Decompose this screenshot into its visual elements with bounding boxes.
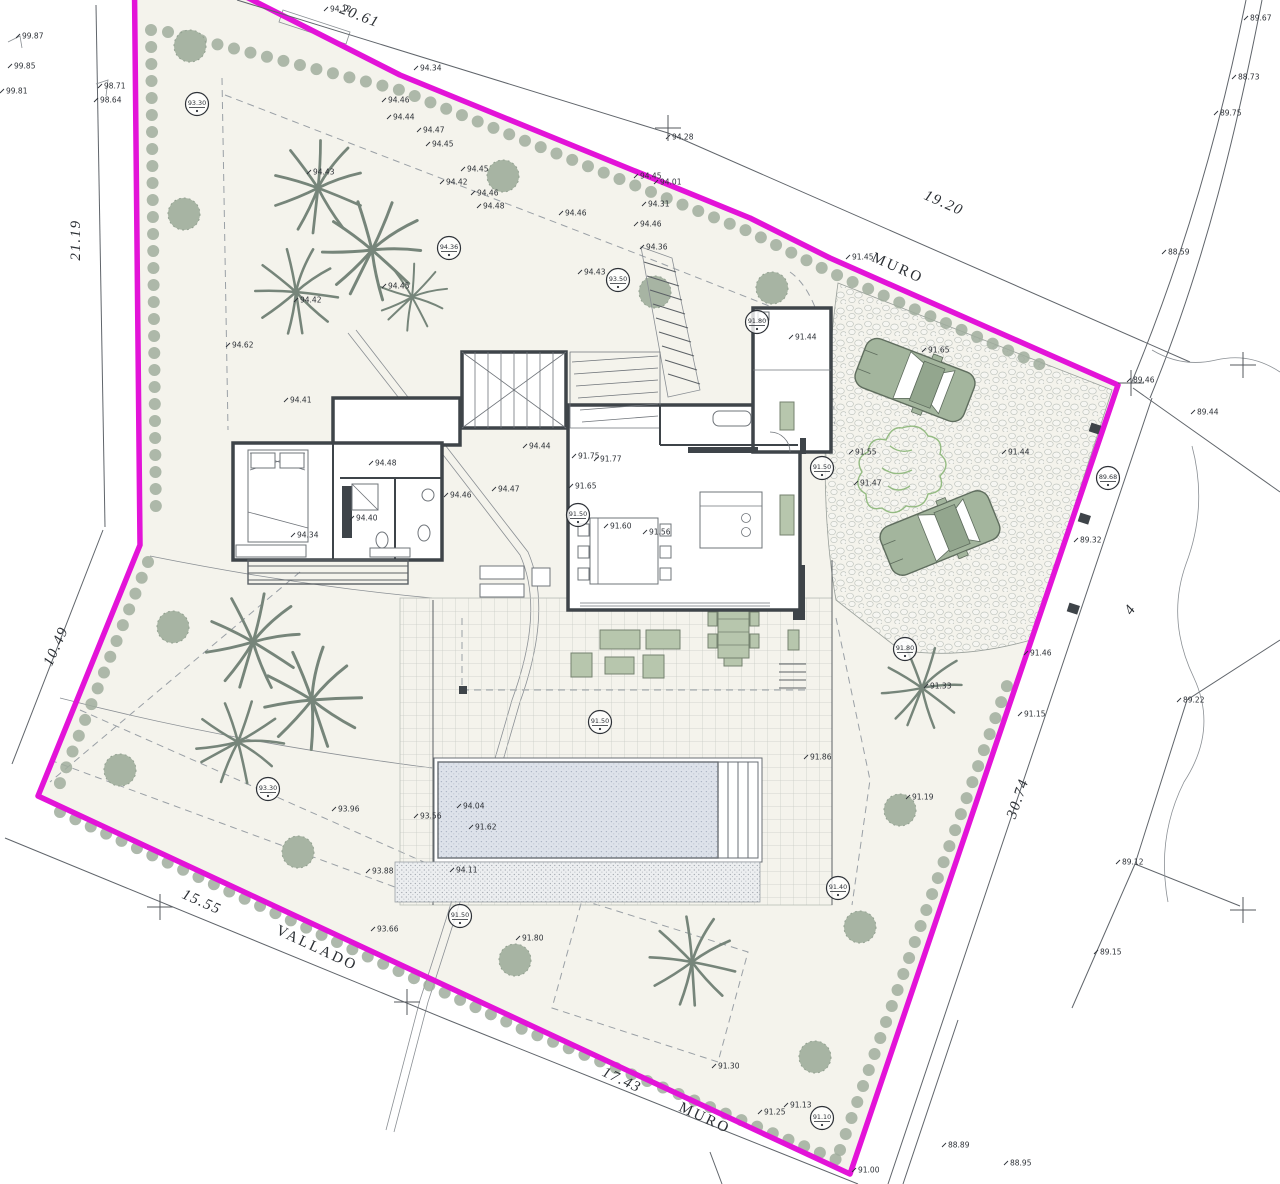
benchmark-value: 91.10 xyxy=(813,1113,831,1121)
spot-elevation-tick xyxy=(1004,1161,1008,1165)
spot-elevation: 88.59 xyxy=(1162,248,1190,257)
spot-elevation-value: 93.88 xyxy=(372,867,394,876)
spot-elevation: 98.71 xyxy=(98,82,126,91)
benchmark-value: 91.50 xyxy=(569,510,587,518)
benchmark-dot xyxy=(756,328,758,330)
survey-cross xyxy=(1230,897,1256,923)
spot-elevation-value: 94.40 xyxy=(356,514,378,523)
spot-elevation-value: 98.64 xyxy=(100,96,122,105)
spot-elevation-tick xyxy=(8,64,12,68)
spot-elevation-tick xyxy=(1127,378,1131,382)
benchmark-marker: 91.50 xyxy=(589,711,612,734)
spot-elevation-value: 94.45 xyxy=(388,282,410,291)
spot-elevation-value: 99.85 xyxy=(14,62,36,71)
spot-elevation-value: 94.47 xyxy=(498,485,520,494)
spot-elevation-value: 89.15 xyxy=(1100,948,1122,957)
benchmark-marker: 93.30 xyxy=(186,93,209,116)
benchmark-value: 93.50 xyxy=(609,275,627,283)
spot-elevation-value: 94.28 xyxy=(672,133,694,142)
spot-elevation-value: 91.44 xyxy=(795,333,817,342)
benchmark-marker: 91.50 xyxy=(811,457,834,480)
benchmark-marker: 91.10 xyxy=(811,1107,834,1130)
benchmark-dot xyxy=(837,894,839,896)
spot-elevation-value: 94.31 xyxy=(648,200,670,209)
benchmark-dot xyxy=(599,728,601,730)
spot-elevation-tick xyxy=(1162,250,1166,254)
spot-elevation-tick xyxy=(1177,698,1181,702)
benchmark-marker: 91.80 xyxy=(746,311,769,334)
spot-elevation-tick xyxy=(846,255,850,259)
spot-elevation-value: 91.00 xyxy=(858,1166,880,1175)
spot-elevation-tick xyxy=(1232,75,1236,79)
spot-elevation-value: 94.42 xyxy=(300,296,322,305)
spot-elevation-tick xyxy=(1116,860,1120,864)
spot-elevation-value: 94.44 xyxy=(529,442,551,451)
pool-deck xyxy=(395,862,760,902)
benchmark-value: 93.30 xyxy=(188,99,206,107)
spot-elevation-value: 91.47 xyxy=(860,479,882,488)
spot-elevation-value: 94.43 xyxy=(584,268,606,277)
spot-elevation-value: 91.25 xyxy=(764,1108,786,1117)
spot-elevation-tick xyxy=(98,84,102,88)
benchmark-marker: 94.36 xyxy=(438,237,461,260)
spot-elevation-value: 94.46 xyxy=(565,209,587,218)
benchmark-value: 91.80 xyxy=(896,644,914,652)
spot-elevation-tick xyxy=(942,1143,946,1147)
spot-elevation: 89.22 xyxy=(1177,696,1205,705)
spot-elevation-value: 91.60 xyxy=(610,522,632,531)
spot-elevation-value: 94.46 xyxy=(477,189,499,198)
benchmark-value: 91.80 xyxy=(748,317,766,325)
spot-elevation-value: 91.62 xyxy=(475,823,497,832)
spot-elevation-value: 88.95 xyxy=(1010,1159,1032,1168)
spot-elevation-value: 94.46 xyxy=(450,491,472,500)
benchmark-value: 91.50 xyxy=(451,911,469,919)
spot-elevation-value: 94.45 xyxy=(467,165,489,174)
benchmark-dot xyxy=(821,474,823,476)
benchmark-value: 91.50 xyxy=(591,717,609,725)
spot-elevation-value: 89.75 xyxy=(1220,109,1242,118)
benchmark-dot xyxy=(821,1124,823,1126)
spot-elevation-value: 93.96 xyxy=(338,805,360,814)
spot-elevation-value: 94.42 xyxy=(446,178,468,187)
spot-elevation-tick xyxy=(0,89,4,93)
spot-elevation-tick xyxy=(324,7,328,11)
spot-elevation-value: 94.45 xyxy=(640,172,662,181)
spot-elevation-value: 94.34 xyxy=(297,531,319,540)
spot-elevation-value: 88.73 xyxy=(1238,73,1260,82)
spot-elevation-value: 94.41 xyxy=(290,396,312,405)
spot-elevation-tick xyxy=(1074,538,1078,542)
survey-cross xyxy=(1118,370,1144,396)
spot-elevation-value: 89.67 xyxy=(1250,14,1272,23)
spot-elevation: 91.15 xyxy=(1018,710,1046,719)
spot-elevation: 91.00 xyxy=(852,1166,880,1175)
spot-elevation-value: 91.65 xyxy=(928,346,950,355)
spot-elevation-value: 88.59 xyxy=(1168,248,1190,257)
spot-elevation-value: 98.71 xyxy=(104,82,126,91)
kitchen-island xyxy=(700,492,762,548)
spot-elevation-tick xyxy=(1244,16,1248,20)
dimension-label: 19.20 xyxy=(922,188,966,219)
spot-elevation-value: 99.81 xyxy=(6,87,28,96)
spot-elevation-value: 93.56 xyxy=(420,812,442,821)
spot-elevation-value: 91.77 xyxy=(600,455,622,464)
spot-elevation-value: 91.56 xyxy=(649,528,671,537)
benchmark-marker: 91.50 xyxy=(567,504,590,527)
spot-elevation-value: 94.11 xyxy=(456,866,478,875)
benchmark-value: 94.36 xyxy=(440,243,458,251)
spot-elevation-value: 94.62 xyxy=(232,341,254,350)
site-plan-svg: 20.6119.20MURO21.1910.4915.55VALLADO17.4… xyxy=(0,0,1280,1184)
benchmark-marker: 91.50 xyxy=(449,905,472,928)
spot-elevation-value: 94.36 xyxy=(646,243,668,252)
spot-elevation-value: 91.15 xyxy=(1024,710,1046,719)
spot-elevation-value: 91.44 xyxy=(1008,448,1030,457)
dimension-label: 30.74 xyxy=(1004,777,1033,822)
spot-elevation: 89.67 xyxy=(1244,14,1272,23)
benchmark-dot xyxy=(1107,484,1109,486)
spot-elevation-value: 94.12 xyxy=(330,5,352,14)
sofa xyxy=(480,566,524,579)
spot-elevation: 88.73 xyxy=(1232,73,1260,82)
spot-elevation-value: 88.89 xyxy=(948,1141,970,1150)
spot-elevation-value: 94.46 xyxy=(640,220,662,229)
spot-elevation-value: 91.19 xyxy=(912,793,934,802)
benchmark-value: 93.30 xyxy=(259,784,277,792)
spot-elevation-value: 91.13 xyxy=(790,1101,812,1110)
spot-elevation: 88.89 xyxy=(942,1141,970,1150)
spot-elevation-value: 94.46 xyxy=(388,96,410,105)
utility-room xyxy=(333,398,460,445)
spot-elevation-value: 89.12 xyxy=(1122,858,1144,867)
spot-elevation-value: 93.66 xyxy=(377,925,399,934)
benchmark-value: 91.40 xyxy=(829,883,847,891)
spot-elevation-tick xyxy=(1214,111,1218,115)
spot-elevation-value: 94.44 xyxy=(393,113,415,122)
spot-elevation-value: 89.44 xyxy=(1197,408,1219,417)
spot-elevation-value: 91.46 xyxy=(1030,649,1052,658)
survey-cross xyxy=(394,989,420,1015)
spot-elevation-value: 91.55 xyxy=(855,448,877,457)
spot-elevation-value: 94.04 xyxy=(463,802,485,811)
driveway-gravel xyxy=(825,283,1112,653)
spot-elevation-value: 89.22 xyxy=(1183,696,1205,705)
spot-elevation-value: 91.30 xyxy=(718,1062,740,1071)
spot-elevation-value: 94.48 xyxy=(375,459,397,468)
spot-elevation-value: 91.45 xyxy=(852,253,874,262)
dimension-label: 15.55 xyxy=(180,887,224,918)
spot-elevation: 89.32 xyxy=(1074,536,1102,545)
dimension-label: 4 xyxy=(1122,601,1140,618)
spot-elevation: 89.75 xyxy=(1214,109,1242,118)
benchmark-dot xyxy=(267,795,269,797)
spot-elevation-value: 94.48 xyxy=(483,202,505,211)
spot-elevation: 89.44 xyxy=(1191,408,1219,417)
dimension-label: 10.49 xyxy=(41,624,72,668)
spot-elevation: 99.81 xyxy=(0,87,28,96)
benchmark-dot xyxy=(577,521,579,523)
spot-elevation-tick xyxy=(414,66,418,70)
benchmark-value: 91.50 xyxy=(813,463,831,471)
dimension-label: 21.19 xyxy=(68,219,84,260)
swimming-pool xyxy=(395,758,762,902)
benchmark-marker: 89.68 xyxy=(1097,467,1120,490)
benchmark-dot xyxy=(196,110,198,112)
spot-elevation-value: 91.33 xyxy=(930,682,952,691)
benchmark-dot xyxy=(459,922,461,924)
spot-elevation: 99.85 xyxy=(8,62,36,71)
benchmark-marker: 93.50 xyxy=(607,269,630,292)
spot-elevation-value: 89.32 xyxy=(1080,536,1102,545)
survey-cross xyxy=(1230,352,1256,378)
benchmark-value: 89.68 xyxy=(1099,473,1117,481)
spot-elevation-value: 94.01 xyxy=(660,178,682,187)
spot-elevation-value: 94.45 xyxy=(432,140,454,149)
spot-elevation-tick xyxy=(1018,712,1022,716)
benchmark-marker: 91.40 xyxy=(827,877,850,900)
benchmark-dot xyxy=(904,655,906,657)
spot-elevation: 91.45 xyxy=(846,253,874,262)
spot-elevation-value: 94.43 xyxy=(313,168,335,177)
site-plan-canvas: 20.6119.20MURO21.1910.4915.55VALLADO17.4… xyxy=(0,0,1280,1184)
spot-elevation: 89.12 xyxy=(1116,858,1144,867)
spot-elevation: 88.95 xyxy=(1004,1159,1032,1168)
spot-elevation-tick xyxy=(1191,410,1195,414)
benchmark-dot xyxy=(617,286,619,288)
spot-elevation-value: 91.86 xyxy=(810,753,832,762)
spot-elevation-value: 94.34 xyxy=(420,64,442,73)
spot-elevation-value: 91.80 xyxy=(522,934,544,943)
benchmark-dot xyxy=(448,254,450,256)
spot-elevation-value: 99.87 xyxy=(22,32,44,41)
spot-elevation: 94.34 xyxy=(414,64,442,73)
benchmark-marker: 91.80 xyxy=(894,638,917,661)
spot-elevation-value: 91.65 xyxy=(575,482,597,491)
spot-elevation-value: 94.47 xyxy=(423,126,445,135)
benchmark-marker: 93.30 xyxy=(257,778,280,801)
spot-elevation: 94.12 xyxy=(324,5,352,14)
